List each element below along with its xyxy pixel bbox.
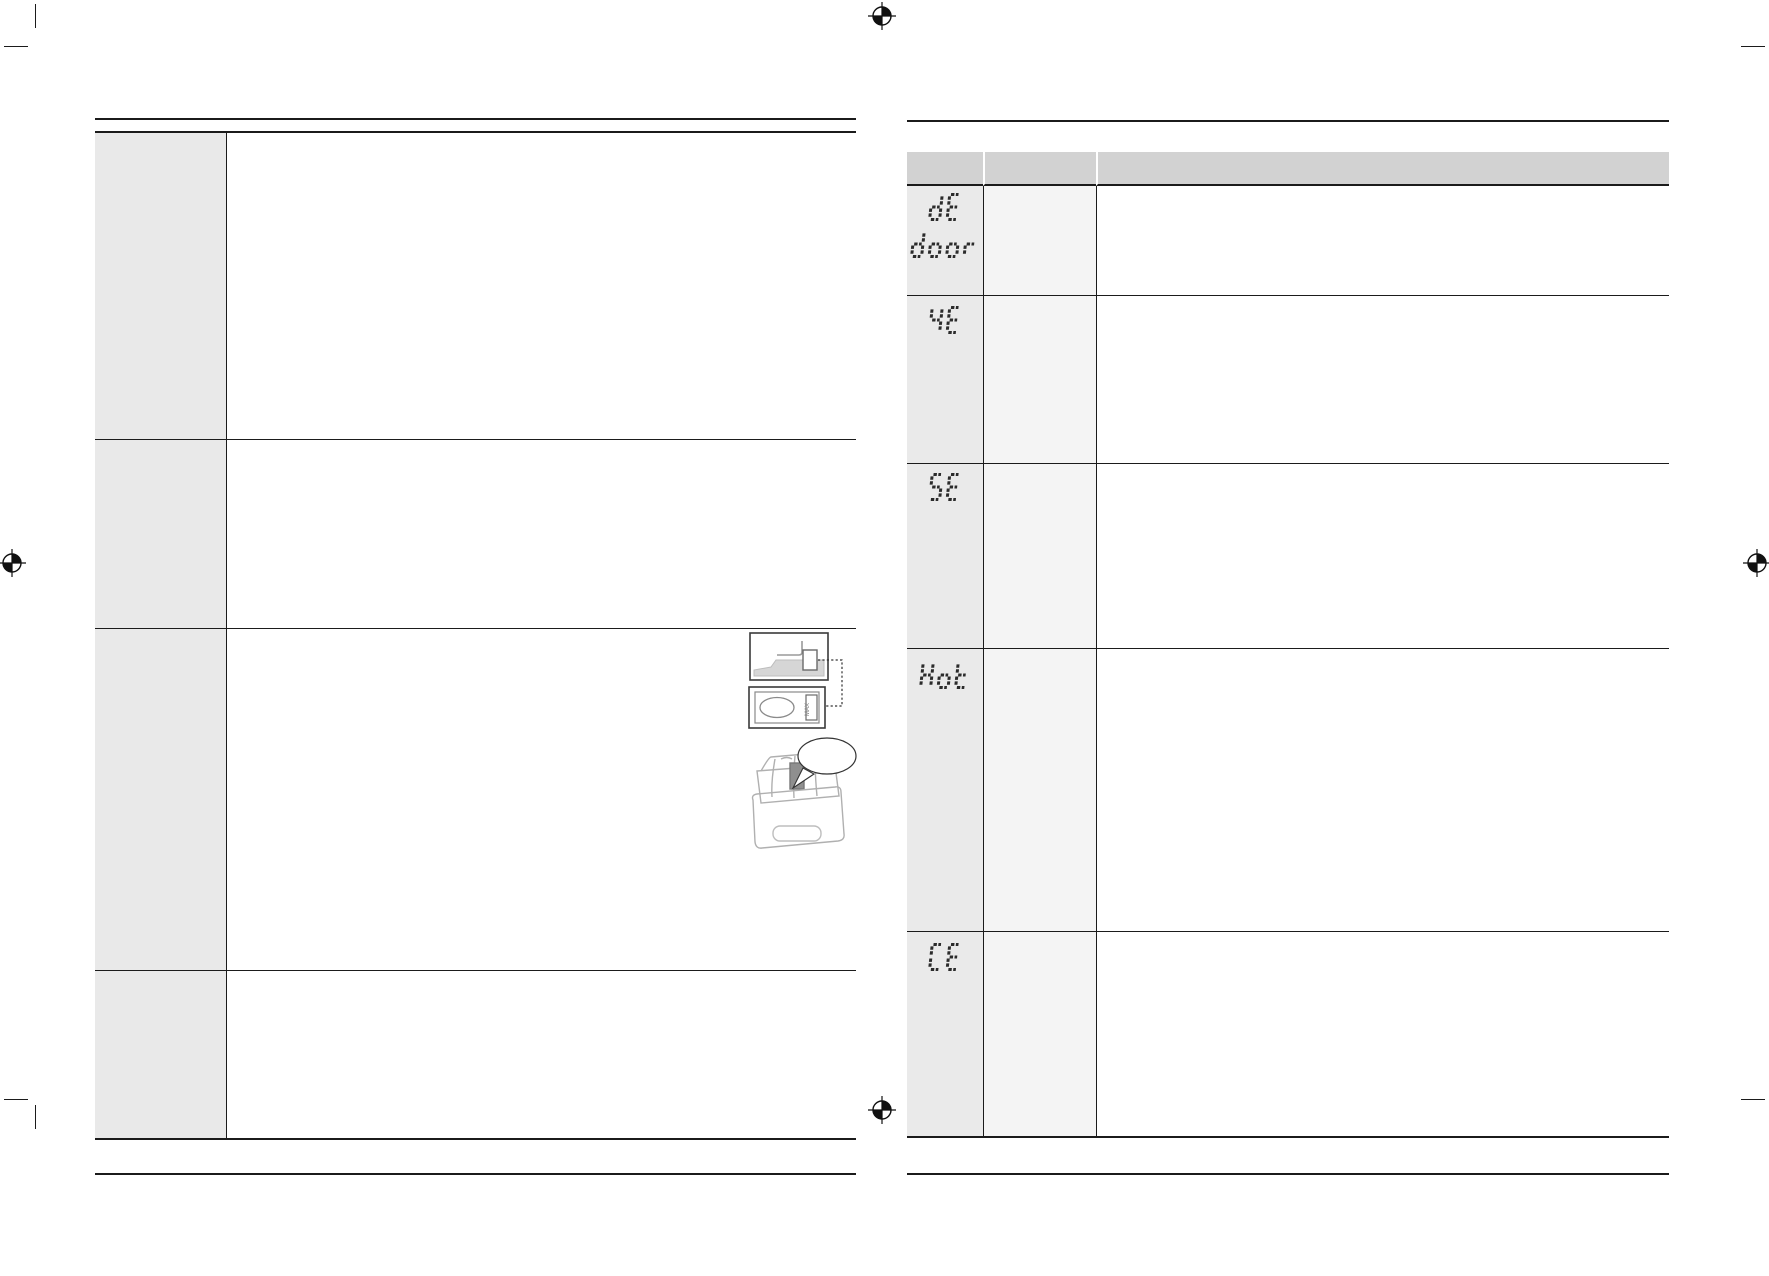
issue-label-cell <box>95 970 227 1138</box>
error-meaning-cell <box>983 463 1096 648</box>
seven-segment-code <box>914 660 977 690</box>
issue-label-cell <box>95 133 227 439</box>
error-meaning-cell <box>983 295 1096 463</box>
header-meaning-cell <box>983 152 1096 186</box>
error-code-table <box>907 152 1669 1138</box>
crop-mark <box>4 46 28 47</box>
error-solution-cell <box>1096 186 1669 295</box>
error-meaning-cell <box>983 186 1096 295</box>
max-label: MAX <box>805 703 811 716</box>
crop-mark <box>35 1105 36 1129</box>
error-solution-cell <box>1096 295 1669 463</box>
right-page-top-rule <box>907 120 1669 122</box>
error-code-cell <box>907 186 983 295</box>
compartment-closeup-icon: MAX <box>749 687 825 728</box>
registration-mark-icon <box>868 1096 896 1124</box>
dispenser-side-view-icon <box>750 633 828 680</box>
issue-label-cell <box>95 439 227 628</box>
issue-label-cell <box>95 628 227 970</box>
header-symbol-cell <box>907 152 983 186</box>
error-meaning-cell <box>983 648 1096 931</box>
header-solution-cell <box>1096 152 1669 186</box>
seven-segment-code <box>923 472 968 502</box>
error-solution-cell <box>1096 931 1669 1136</box>
error-code-cell <box>907 295 983 463</box>
error-solution-cell <box>1096 463 1669 648</box>
seven-segment-code <box>923 942 968 972</box>
left-page-top-rule <box>95 118 856 120</box>
registration-mark-icon <box>1743 549 1769 577</box>
speech-bubble-icon <box>793 738 856 788</box>
error-code-cell <box>907 463 983 648</box>
seven-segment-code <box>923 192 968 222</box>
issue-content-cell <box>227 970 856 1138</box>
issue-content-cell <box>227 439 856 628</box>
crop-mark <box>35 4 36 28</box>
registration-mark-icon <box>868 2 896 30</box>
registration-mark-icon <box>0 549 26 577</box>
crop-mark <box>4 1099 28 1100</box>
error-meaning-cell <box>983 931 1096 1136</box>
left-page-footer-rule <box>95 1173 856 1175</box>
troubleshooting-table-left <box>95 131 856 1140</box>
error-solution-cell <box>1096 648 1669 931</box>
manual-spread: MAX <box>0 0 1769 1276</box>
seven-segment-code <box>905 229 985 259</box>
right-page-footer-rule <box>907 1173 1669 1175</box>
error-code-cell <box>907 931 983 1136</box>
issue-content-cell <box>227 133 856 439</box>
error-code-cell <box>907 648 983 931</box>
detergent-dispenser-illustration: MAX <box>745 628 863 880</box>
crop-mark <box>1741 46 1765 47</box>
seven-segment-code <box>923 305 968 335</box>
crop-mark <box>1741 1099 1765 1100</box>
